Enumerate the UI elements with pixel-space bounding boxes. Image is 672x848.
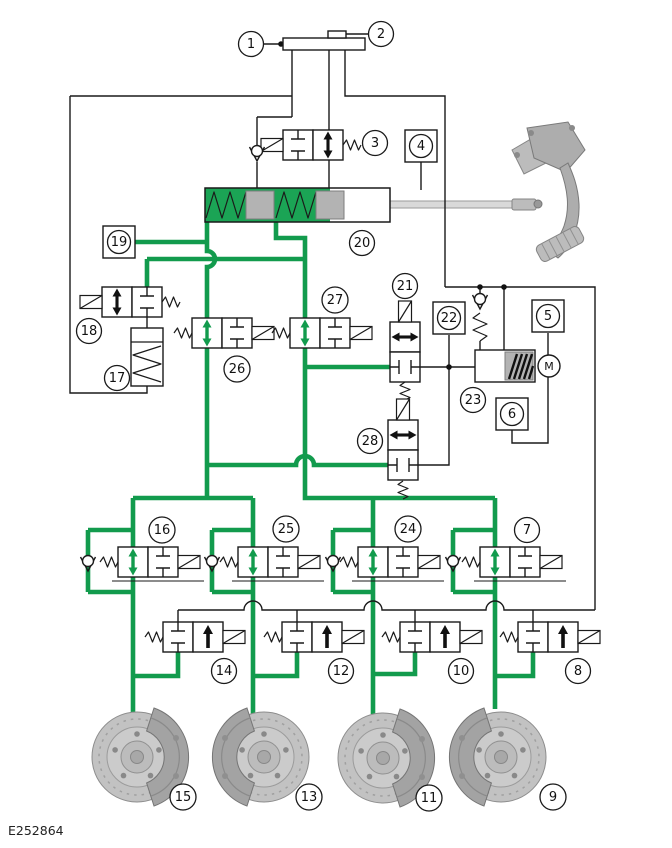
svg-text:27: 27: [327, 293, 344, 308]
callout-10: 10: [449, 659, 474, 684]
callout-22-label: 22: [441, 311, 458, 326]
callout-23: 23: [461, 388, 486, 413]
brake-disc-9: [449, 708, 546, 806]
valve-24-spring-icon: [340, 557, 358, 567]
callout-16: 16: [149, 517, 175, 543]
junction-dot: [477, 284, 483, 290]
svg-text:28: 28: [362, 434, 379, 449]
valve-18-solenoid-icon: [80, 296, 102, 309]
callout-9: 9: [540, 784, 566, 810]
valve-14-solenoid-icon: [223, 631, 245, 644]
svg-text:2: 2: [377, 27, 385, 42]
valve-12-solenoid-icon: [342, 631, 364, 644]
mc-piston-1: [246, 191, 274, 219]
valve-3-assembly: [250, 130, 362, 161]
svg-text:16: 16: [154, 523, 171, 538]
green-circuit1-lines: [133, 220, 390, 550]
valve-28-assembly: [388, 399, 418, 499]
valve-26-assembly: [174, 318, 274, 348]
svg-text:26: 26: [229, 362, 246, 377]
callout-6-label: 6: [508, 407, 516, 422]
callout-20: 20: [350, 231, 375, 256]
pedal-feel-accumulator-17: [131, 328, 163, 386]
callout-11: 11: [416, 785, 442, 811]
callout-25: 25: [273, 516, 299, 542]
valve-18-spring-icon: [162, 297, 180, 307]
valve-14-spring-icon: [145, 632, 163, 642]
valve-8-spring-icon: [500, 632, 518, 642]
master-cylinder-push-rod: [390, 201, 518, 208]
valve-10-spring-icon: [382, 632, 400, 642]
sensor-box-5: 5: [532, 300, 564, 332]
callout-1: 1: [239, 32, 264, 57]
sensor-box-4: 4: [405, 130, 437, 162]
callout-3: 3: [363, 131, 388, 156]
abs-inlet-valves: [81, 547, 563, 577]
callout-14: 14: [212, 659, 237, 684]
valve-7-solenoid-icon: [540, 556, 562, 569]
brake-hydraulics-schematic: M: [0, 0, 672, 848]
valve-3-check-valve-icon: [250, 146, 265, 162]
check-valve-22-icon: [473, 294, 488, 310]
check-valve-22-spring: [473, 313, 487, 341]
svg-text:10: 10: [453, 664, 470, 679]
valve-27-spring-icon: [272, 328, 290, 338]
callout-4-label: 4: [417, 139, 425, 154]
callout-13: 13: [296, 784, 322, 810]
valve-28-solenoid-icon: [397, 399, 410, 420]
sensor-box-19: 19: [103, 226, 135, 258]
valve-21-spring-icon: [400, 382, 410, 400]
valve-24-solenoid-icon: [418, 556, 440, 569]
callout-7: 7: [515, 518, 540, 543]
callout-18: 18: [77, 319, 102, 344]
sensor-box-6: 6: [496, 398, 528, 430]
callout-2: 2: [369, 22, 394, 47]
svg-text:18: 18: [81, 324, 98, 339]
brake-hydraulics-schematic-page: M: [0, 0, 672, 848]
callout-26: 26: [224, 356, 250, 382]
valve-26-spring-icon: [174, 328, 192, 338]
pedal-pad: [535, 225, 586, 263]
svg-text:15: 15: [175, 790, 192, 805]
motor-label: M: [544, 360, 554, 373]
svg-text:24: 24: [400, 522, 417, 537]
svg-text:3: 3: [371, 136, 379, 151]
valve-16-spring-icon: [100, 557, 118, 567]
valve-7-spring-icon: [462, 557, 480, 567]
svg-text:17: 17: [109, 371, 126, 386]
callout-17: 17: [105, 366, 130, 391]
junction-dot: [501, 284, 507, 290]
valve-8-solenoid-icon: [578, 631, 600, 644]
valve-25-solenoid-icon: [298, 556, 320, 569]
valve-27-solenoid-icon: [350, 327, 372, 340]
master-cylinder: [205, 188, 390, 222]
brake-pedal: [512, 122, 585, 263]
valve-3-spring-icon: [343, 140, 361, 150]
callout-19-label: 19: [111, 235, 128, 250]
callout-12: 12: [329, 659, 354, 684]
valve-26-solenoid-icon: [252, 327, 274, 340]
valve-12-spring-icon: [264, 632, 282, 642]
brake-disc-13: [212, 708, 309, 806]
callout-24: 24: [395, 516, 421, 542]
svg-text:25: 25: [278, 522, 295, 537]
callout-15: 15: [170, 784, 196, 810]
reservoir-cap: [328, 31, 346, 38]
svg-text:13: 13: [301, 790, 318, 805]
reservoir-body: [283, 38, 365, 50]
svg-text:23: 23: [465, 393, 482, 408]
valve-25-spring-icon: [220, 557, 238, 567]
valve-3-solenoid-icon: [261, 139, 283, 152]
junction-dot: [446, 364, 452, 370]
valve-21-assembly: [390, 301, 420, 400]
push-rod-clevis: [512, 199, 536, 210]
green-circuit2-lines: [147, 220, 495, 550]
valve-18-assembly: [80, 287, 180, 317]
svg-text:14: 14: [216, 664, 233, 679]
mc-piston-2: [316, 191, 344, 219]
callout-21: 21: [393, 274, 418, 299]
svg-text:8: 8: [574, 664, 582, 679]
callout-8: 8: [566, 659, 591, 684]
callout-28: 28: [358, 429, 383, 454]
svg-text:7: 7: [523, 523, 531, 538]
svg-text:9: 9: [549, 790, 557, 805]
valve-27-assembly: [272, 318, 372, 348]
svg-text:1: 1: [247, 37, 255, 52]
svg-text:12: 12: [333, 664, 350, 679]
sensor-box-22: 22: [433, 302, 465, 334]
callout-5-label: 5: [544, 309, 552, 324]
svg-text:21: 21: [397, 279, 414, 294]
valve-21-solenoid-icon: [399, 301, 412, 322]
valve-10-solenoid-icon: [460, 631, 482, 644]
figure-code: E252864: [8, 823, 64, 838]
callout-27: 27: [322, 287, 348, 313]
valve-16-solenoid-icon: [178, 556, 200, 569]
svg-text:11: 11: [421, 791, 438, 806]
svg-text:20: 20: [354, 236, 371, 251]
